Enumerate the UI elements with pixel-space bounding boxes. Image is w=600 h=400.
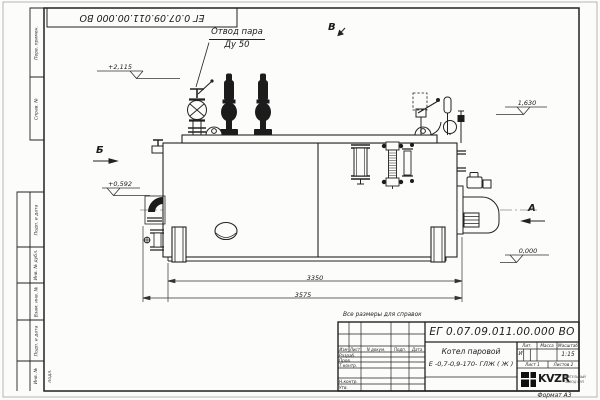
logo-sub-line1: КОТЕЛЬНЫЙ xyxy=(565,375,586,379)
drawing-sheet: ЕГ 0.07.09.011.00.000 ВО Перв. примен. С… xyxy=(0,0,600,400)
sheets-total-label: Листов xyxy=(554,362,570,367)
sheet-number-label: Лист xyxy=(525,362,536,367)
scale-value: 1:15 xyxy=(557,351,579,358)
format-label: Формат А3 xyxy=(530,392,579,399)
logo-sub-line2: ЗАВОД РЭП xyxy=(565,380,584,384)
margin-label-perv-primen: Перв. примен. xyxy=(30,8,44,77)
row-utv: Утв. xyxy=(339,385,348,390)
margin-label-podp-data-2: Подп. и дата xyxy=(30,320,44,361)
elevation-right: 1,630 xyxy=(507,99,547,107)
massa-header: Масса xyxy=(537,343,557,348)
margin-label-sprav-no: Справ. № xyxy=(30,77,44,140)
lit-header: Лит. xyxy=(517,343,537,348)
sheets-total-value: 2 xyxy=(571,362,574,367)
col-data: Дата xyxy=(409,347,425,352)
steam-outlet-line1: Отвод пара xyxy=(209,27,265,40)
steam-outlet-line2: Ду 50 xyxy=(224,40,249,50)
dim-3350: 3350 xyxy=(290,274,340,282)
view-label-b-top: В xyxy=(328,22,336,33)
masshtab-header: Масштаб xyxy=(557,343,579,348)
kvzr-logo-subtext: КОТЕЛЬНЫЙ ЗАВОД РЭП xyxy=(565,375,586,385)
dim-3575: 3575 xyxy=(278,291,328,299)
margin-label-vzam-inv: Взам. инв. № xyxy=(30,283,44,320)
kvzr-logo-icon xyxy=(521,372,536,387)
titleblock-product-name: Котел паровой Е -0,7-0,9-170- ГЛЖ ( Ж ) xyxy=(425,346,517,370)
elevation-left: +0,592 xyxy=(100,180,140,188)
safety-valve-icon xyxy=(254,74,272,136)
col-izm: Изм xyxy=(338,347,349,352)
elevation-top: +2,115 xyxy=(98,63,142,71)
titleblock-designation: ЕГ 0.07.09.011.00.000 ВО xyxy=(425,323,579,342)
product-name-line2: Е -0,7-0,9-170- ГЛЖ ( Ж ) xyxy=(429,360,513,368)
sheet-number: Лист 1 xyxy=(517,362,548,367)
lifting-lug-icon xyxy=(206,127,431,135)
row-prov: Пров. xyxy=(339,358,351,363)
view-label-b-left: Б xyxy=(96,145,104,156)
lit-value: И xyxy=(517,351,524,357)
reference-note: Все размеры для справок xyxy=(343,312,422,318)
boiler-body xyxy=(163,135,457,262)
row-nkontr: Н.контр. xyxy=(339,379,358,384)
steam-outlet-callout: Отвод пара Ду 50 xyxy=(203,27,271,51)
steam-valve-icon xyxy=(188,79,214,135)
safety-valve-icon xyxy=(220,74,238,136)
row-tkontr: Т.контр. xyxy=(339,363,357,368)
margin-label-podp-data-1: Подп. и дата xyxy=(30,192,44,247)
col-doc: N докум. xyxy=(361,347,391,352)
sheet-number-value: 1 xyxy=(537,362,540,367)
top-designation: ЕГ 0.07.09.011.00.000 ВО xyxy=(47,8,237,27)
col-podp: Подп. xyxy=(391,347,409,352)
elevation-zero: 0,000 xyxy=(507,247,549,255)
margin-label-inv-podl: Инв. № подл. xyxy=(30,361,44,391)
view-label-a-right: А xyxy=(528,203,536,214)
burner-icon xyxy=(457,173,499,235)
margin-label-inv-dubl: Инв. № дубл. xyxy=(30,247,44,283)
col-list: Лист xyxy=(349,347,361,352)
product-name-line1: Котел паровой xyxy=(442,347,501,356)
sheets-total: Листов 2 xyxy=(548,362,579,367)
